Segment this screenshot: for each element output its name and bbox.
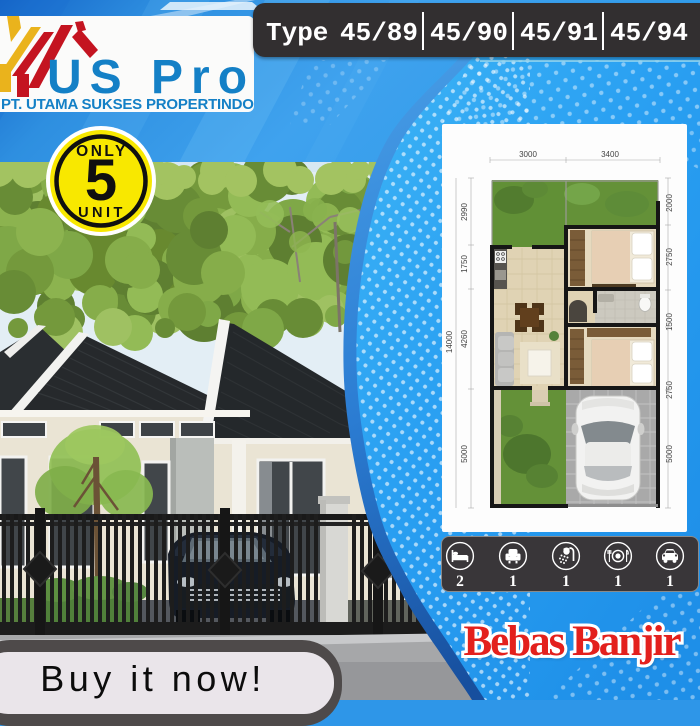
- svg-text:14000: 14000: [445, 330, 454, 353]
- svg-text:1500: 1500: [665, 313, 674, 331]
- svg-text:UNIT: UNIT: [78, 205, 126, 221]
- svg-text:1: 1: [562, 573, 570, 590]
- svg-text:5: 5: [85, 148, 117, 213]
- svg-text:2: 2: [456, 573, 464, 590]
- svg-text:5000: 5000: [665, 445, 674, 463]
- svg-text:3000: 3000: [519, 150, 537, 159]
- svg-text:1: 1: [666, 573, 674, 590]
- svg-text:1750: 1750: [460, 255, 469, 273]
- svg-text:1: 1: [614, 573, 622, 590]
- svg-text:1: 1: [509, 573, 517, 590]
- svg-text:4260: 4260: [460, 330, 469, 348]
- svg-text:2750: 2750: [665, 248, 674, 266]
- svg-text:2000: 2000: [665, 194, 674, 212]
- svg-text:2990: 2990: [460, 203, 469, 221]
- svg-text:3400: 3400: [601, 150, 619, 159]
- svg-text:5000: 5000: [460, 445, 469, 463]
